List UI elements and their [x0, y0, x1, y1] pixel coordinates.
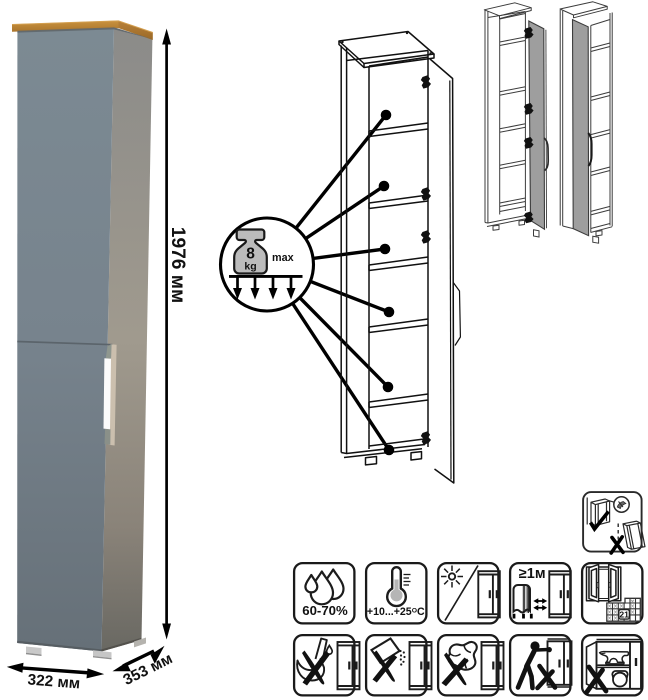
- svg-text:21: 21: [619, 609, 629, 619]
- svg-text:60-70%: 60-70%: [302, 603, 348, 618]
- svg-text:1976 мм: 1976 мм: [167, 227, 188, 303]
- svg-text:+10...+25ОС: +10...+25ОС: [367, 606, 425, 618]
- svg-text:max: max: [272, 252, 294, 264]
- svg-text:kg: kg: [244, 261, 256, 273]
- svg-text:≥1м: ≥1м: [519, 566, 546, 582]
